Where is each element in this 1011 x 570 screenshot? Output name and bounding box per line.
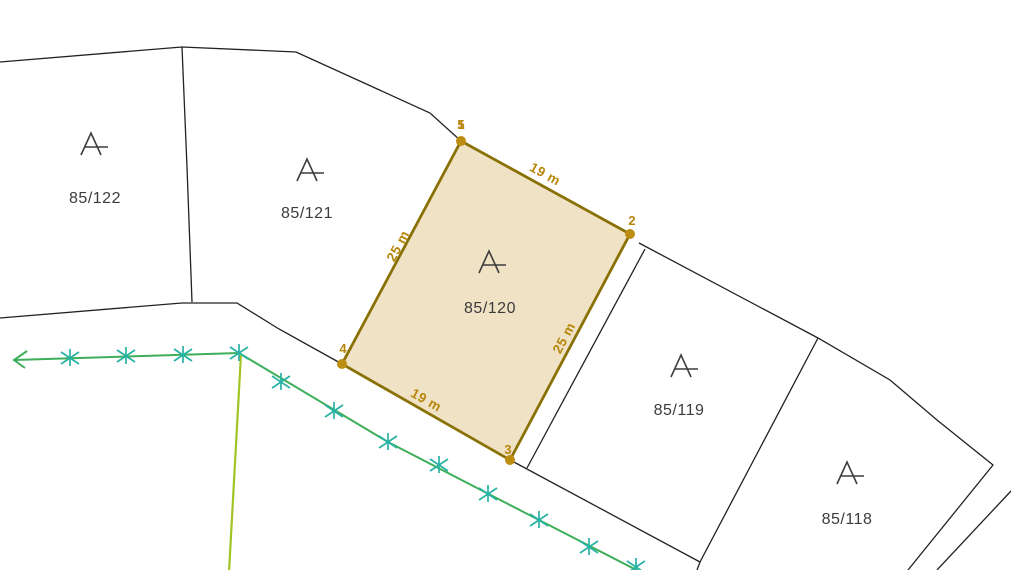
vertex-label-3: 3 <box>504 442 511 457</box>
map-viewport[interactable]: 1 5 2 3 4 19 m 25 m 25 m 19 m 85/122 85/… <box>0 0 1011 570</box>
survey-line-vertical <box>229 354 241 570</box>
boundary-divider-119-118 <box>697 338 818 570</box>
vertex-label-2: 2 <box>628 213 635 228</box>
cadastral-map-canvas[interactable]: 1 5 2 3 4 19 m 25 m 25 m 19 m 85/122 85/… <box>0 0 1011 570</box>
fence-mark-icon <box>580 538 598 555</box>
boundary-bottom-119 <box>512 461 700 562</box>
survey-marks <box>61 344 645 570</box>
survey-lines <box>14 351 652 570</box>
boundary-top <box>0 47 461 141</box>
boundary-divider-122-121 <box>182 47 192 302</box>
fence-mark-icon <box>479 485 497 502</box>
parcel-number-85-121: 85/121 <box>281 205 333 222</box>
parcel-type-a-icon <box>837 462 864 484</box>
fence-mark-icon <box>325 402 343 419</box>
parcel-type-a-icon <box>81 133 108 155</box>
survey-point-1[interactable] <box>456 136 466 146</box>
survey-point-4[interactable] <box>337 359 347 369</box>
fence-mark-icon <box>627 558 645 570</box>
parcel-number-85-118: 85/118 <box>822 511 873 528</box>
fence-mark-icon <box>379 433 397 450</box>
parcel-type-a-icon <box>297 159 324 181</box>
fence-mark-icon <box>530 511 548 528</box>
parcel-number-85-122: 85/122 <box>69 190 121 207</box>
parcel-number-85-120: 85/120 <box>464 300 516 317</box>
vertex-label-4: 4 <box>339 341 347 356</box>
parcel-type-a-icon <box>671 355 698 377</box>
boundary-road-edge <box>937 491 1011 570</box>
vertex-label-5: 5 <box>457 117 464 132</box>
survey-point-2[interactable] <box>625 229 635 239</box>
parcel-number-85-119: 85/119 <box>654 402 705 419</box>
